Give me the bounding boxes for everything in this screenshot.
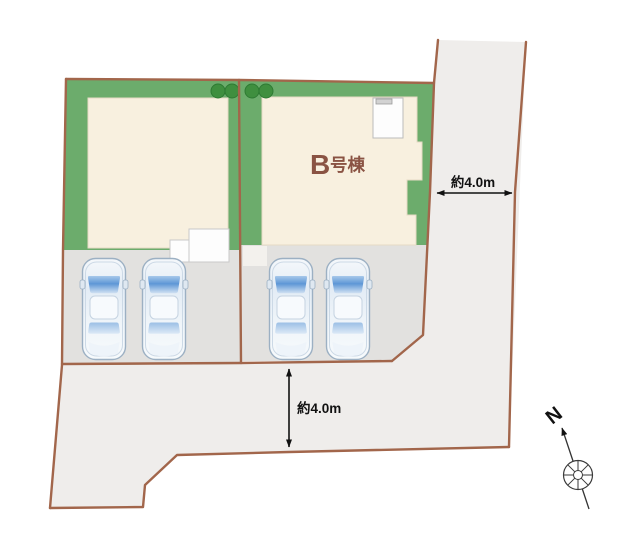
car-icon (80, 259, 128, 360)
house-b-balcony-mark (376, 99, 392, 104)
building-b-label-suffix: 号棟 (330, 155, 365, 175)
tree-icon (211, 84, 225, 98)
building-b-label-main: B (310, 149, 330, 180)
lot-a (62, 79, 240, 365)
tree-icon (259, 84, 273, 98)
tree-icon (225, 84, 239, 98)
lot-b: B 号棟 (240, 80, 434, 361)
bottom-road-width-label: 約4.0m (297, 400, 341, 416)
site-plan-drawing: B 号棟 約4.0m 約4.0m (0, 0, 640, 554)
house-a-porch (189, 229, 229, 262)
car-icon (140, 259, 188, 360)
compass-north-label: N (542, 403, 567, 429)
car-icon (324, 259, 372, 360)
lot-b-walkway (243, 246, 267, 266)
house-a (88, 98, 228, 248)
site-plan: B 号棟 約4.0m 約4.0m (0, 0, 640, 554)
tree-icon (245, 84, 259, 98)
compass-icon: N (542, 403, 593, 509)
right-road-width-label: 約4.0m (451, 174, 495, 190)
compass-rose (564, 461, 593, 490)
car-icon (267, 259, 315, 360)
